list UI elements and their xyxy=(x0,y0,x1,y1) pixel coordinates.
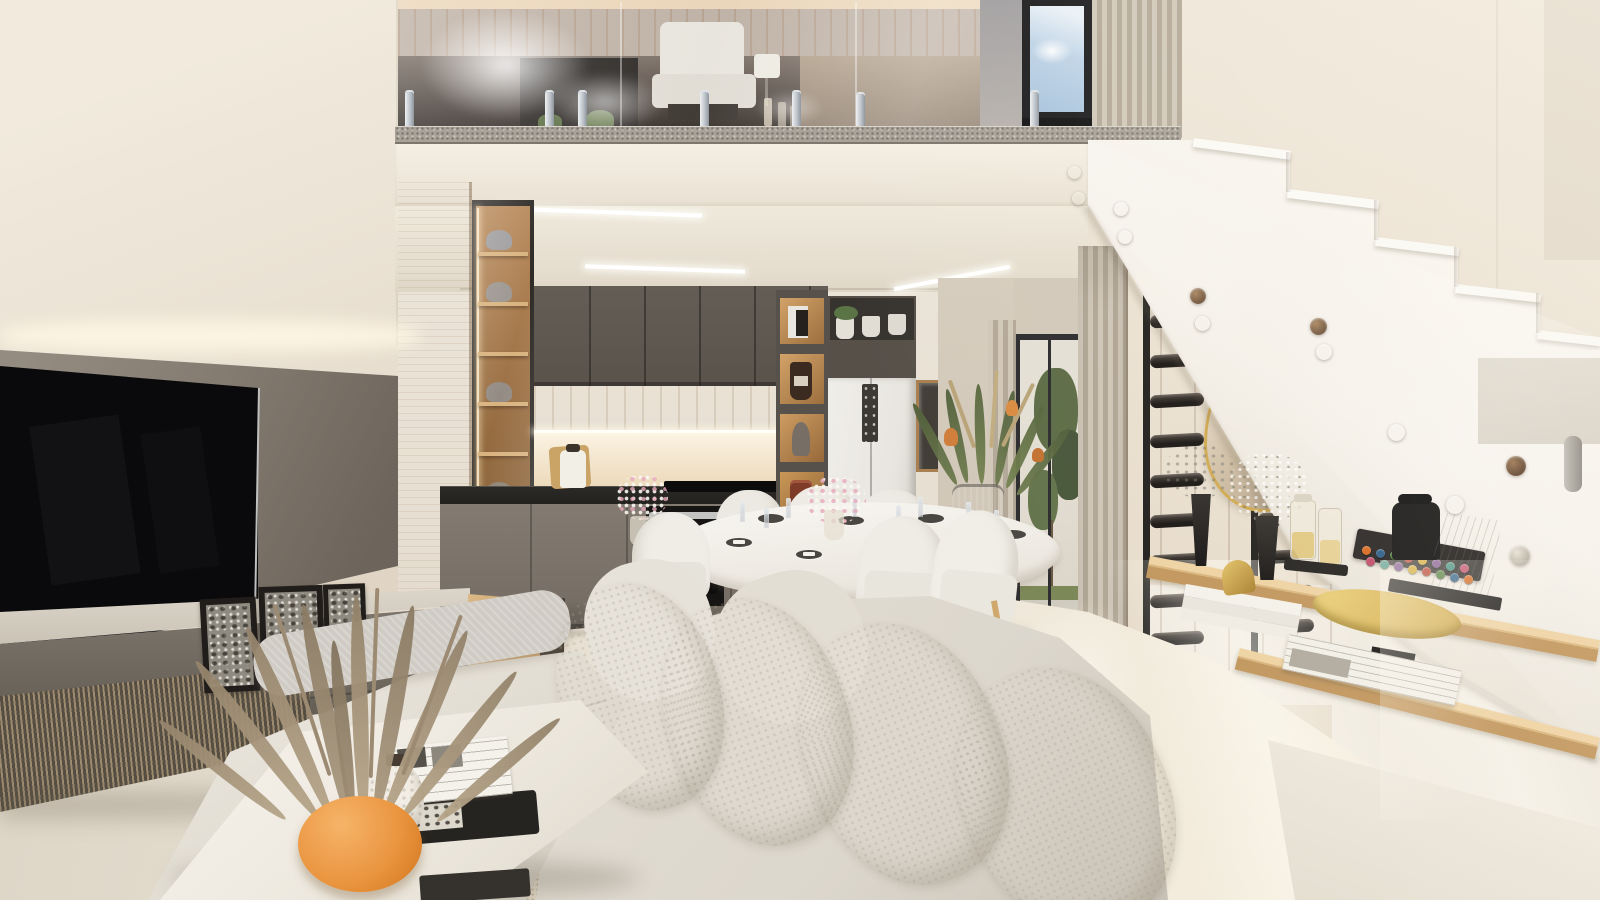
glass-standoff xyxy=(1072,192,1085,205)
wine-glass xyxy=(740,502,745,522)
espresso-machine-lever xyxy=(1398,494,1432,504)
plant-orange-bloom xyxy=(944,428,958,446)
window-cloud xyxy=(1032,38,1072,64)
wine-glass xyxy=(786,498,791,518)
shelf-sunlight xyxy=(1380,560,1600,820)
fridge-control-panel xyxy=(862,384,878,442)
mezzanine-curtain xyxy=(1092,0,1182,138)
mezzanine-fascia xyxy=(395,144,1088,206)
place-setting xyxy=(758,514,784,523)
niche-jug-label xyxy=(794,376,808,386)
wine-glass xyxy=(918,497,923,517)
glass-standoff xyxy=(1190,288,1206,304)
glass-standoff xyxy=(1388,424,1405,441)
mezzanine-granite-ledge xyxy=(395,126,1181,144)
white-flower-bouquet xyxy=(1164,444,1236,498)
handrail-bracket xyxy=(1564,436,1582,492)
undercabinet-led xyxy=(534,430,780,433)
mezzanine-gray-wall xyxy=(980,0,1024,128)
cooktop xyxy=(664,481,780,492)
glass-standoff xyxy=(1068,166,1081,179)
stair-riser-shade xyxy=(1454,247,1460,287)
coffee-capsule xyxy=(1376,549,1385,558)
over-door-wall xyxy=(1014,278,1088,336)
wall-corner-shade xyxy=(1544,0,1600,260)
coffee-capsule xyxy=(1366,557,1375,566)
glass-standoff xyxy=(1114,202,1128,216)
glass-standoff xyxy=(1446,496,1464,514)
plant-orange-bloom xyxy=(1032,448,1044,462)
shelf-plant-pot xyxy=(836,318,854,339)
wall-seam xyxy=(1496,0,1498,330)
shelf-plant-leaves xyxy=(834,306,858,320)
tv-wall-led-glow-top xyxy=(0,320,420,352)
tv-screen-reflection xyxy=(141,427,220,574)
niche-trophy xyxy=(792,422,810,456)
tv-screen-reflection xyxy=(29,415,140,586)
canister-lid xyxy=(566,444,580,452)
bouquet-vase xyxy=(824,510,844,540)
counter-canister xyxy=(560,450,586,488)
coffee-capsule xyxy=(1362,546,1371,555)
oak-band xyxy=(534,386,780,434)
stair-riser-shade xyxy=(1374,200,1380,240)
jar-contents xyxy=(1292,532,1314,558)
glass-standoff xyxy=(1310,318,1327,335)
glass-standoff xyxy=(1118,230,1132,244)
jar-lid xyxy=(1294,494,1312,502)
wine-glass xyxy=(764,508,769,528)
napkin xyxy=(733,540,745,544)
jar-contents xyxy=(1320,540,1340,564)
espresso-machine-head xyxy=(1392,502,1440,560)
glass-standoff xyxy=(1506,456,1526,476)
napkin xyxy=(803,552,815,556)
cabinet-door-seam xyxy=(589,286,591,386)
orange-vase xyxy=(298,796,422,892)
interior-render xyxy=(0,0,1600,900)
niche-coffee-maker-front xyxy=(796,310,808,336)
glass-standoff xyxy=(1195,316,1210,331)
glass-standoff xyxy=(1316,344,1332,360)
stair-riser-shade xyxy=(1286,152,1292,192)
plant-orange-bloom xyxy=(1006,400,1018,416)
